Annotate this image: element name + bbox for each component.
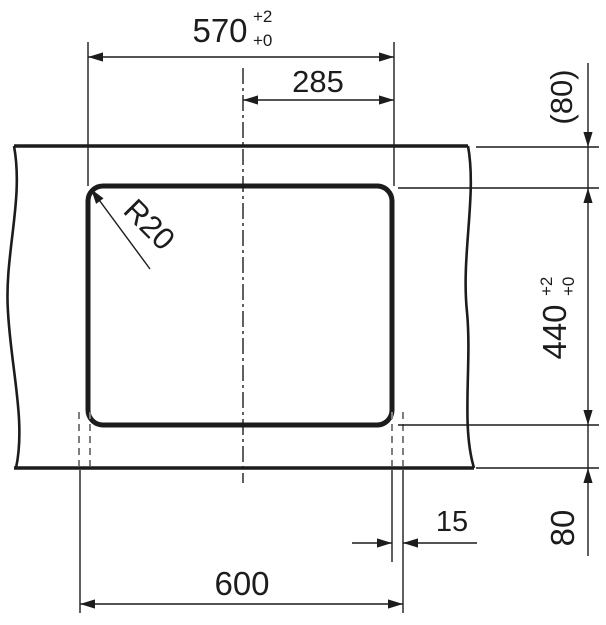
dim-285-label: 285 bbox=[292, 64, 344, 99]
arrowhead bbox=[583, 132, 592, 147]
worktop-outline bbox=[7, 146, 474, 468]
arrowhead bbox=[379, 52, 394, 61]
arrowhead bbox=[388, 599, 403, 608]
dim-15-label: 15 bbox=[436, 506, 468, 538]
dim-r20-label: R20 bbox=[117, 192, 182, 257]
arrowhead bbox=[583, 468, 592, 483]
arrowhead bbox=[403, 538, 418, 547]
arrowhead bbox=[379, 95, 394, 104]
dim-side-overhang: 15 bbox=[352, 470, 477, 613]
dim-cutout-depth: 440 +2 +0 bbox=[536, 277, 578, 360]
dim-80-back-label: (80) bbox=[544, 69, 579, 124]
dim-corner-radius: R20 bbox=[87, 186, 182, 269]
dim-back-offset: (80) bbox=[544, 69, 579, 124]
break-line-left bbox=[7, 146, 19, 468]
arrowhead bbox=[377, 538, 392, 547]
dim-center-to-edge: 285 bbox=[243, 64, 394, 105]
sink-hidden-edges bbox=[79, 412, 403, 466]
dim-570-tol-plus: +2 bbox=[253, 7, 272, 26]
dim-570-label: 570 bbox=[192, 12, 247, 49]
technical-drawing: 570 +2 +0 285 (80) 440 +2 +0 80 bbox=[0, 0, 606, 625]
break-line-right bbox=[466, 146, 474, 468]
dim-sink-width: 600 bbox=[80, 470, 403, 613]
dim-440-label: 440 bbox=[536, 304, 573, 359]
arrowhead bbox=[243, 95, 258, 104]
dim-cutout-width: 570 +2 +0 bbox=[88, 7, 394, 186]
arrowhead bbox=[583, 410, 592, 425]
dim-440-tol-plus: +2 bbox=[537, 277, 556, 296]
dim-vertical-chain: (80) 440 +2 +0 80 bbox=[398, 63, 599, 556]
dim-80-front-label: 80 bbox=[544, 510, 581, 547]
dim-front-offset: 80 bbox=[544, 510, 581, 547]
dim-440-tol-minus: +0 bbox=[559, 277, 578, 296]
arrowhead bbox=[80, 599, 95, 608]
dim-570-tol-minus: +0 bbox=[253, 31, 272, 50]
arrowhead bbox=[583, 188, 592, 203]
dim-600-label: 600 bbox=[214, 565, 269, 602]
arrowhead bbox=[88, 52, 103, 61]
